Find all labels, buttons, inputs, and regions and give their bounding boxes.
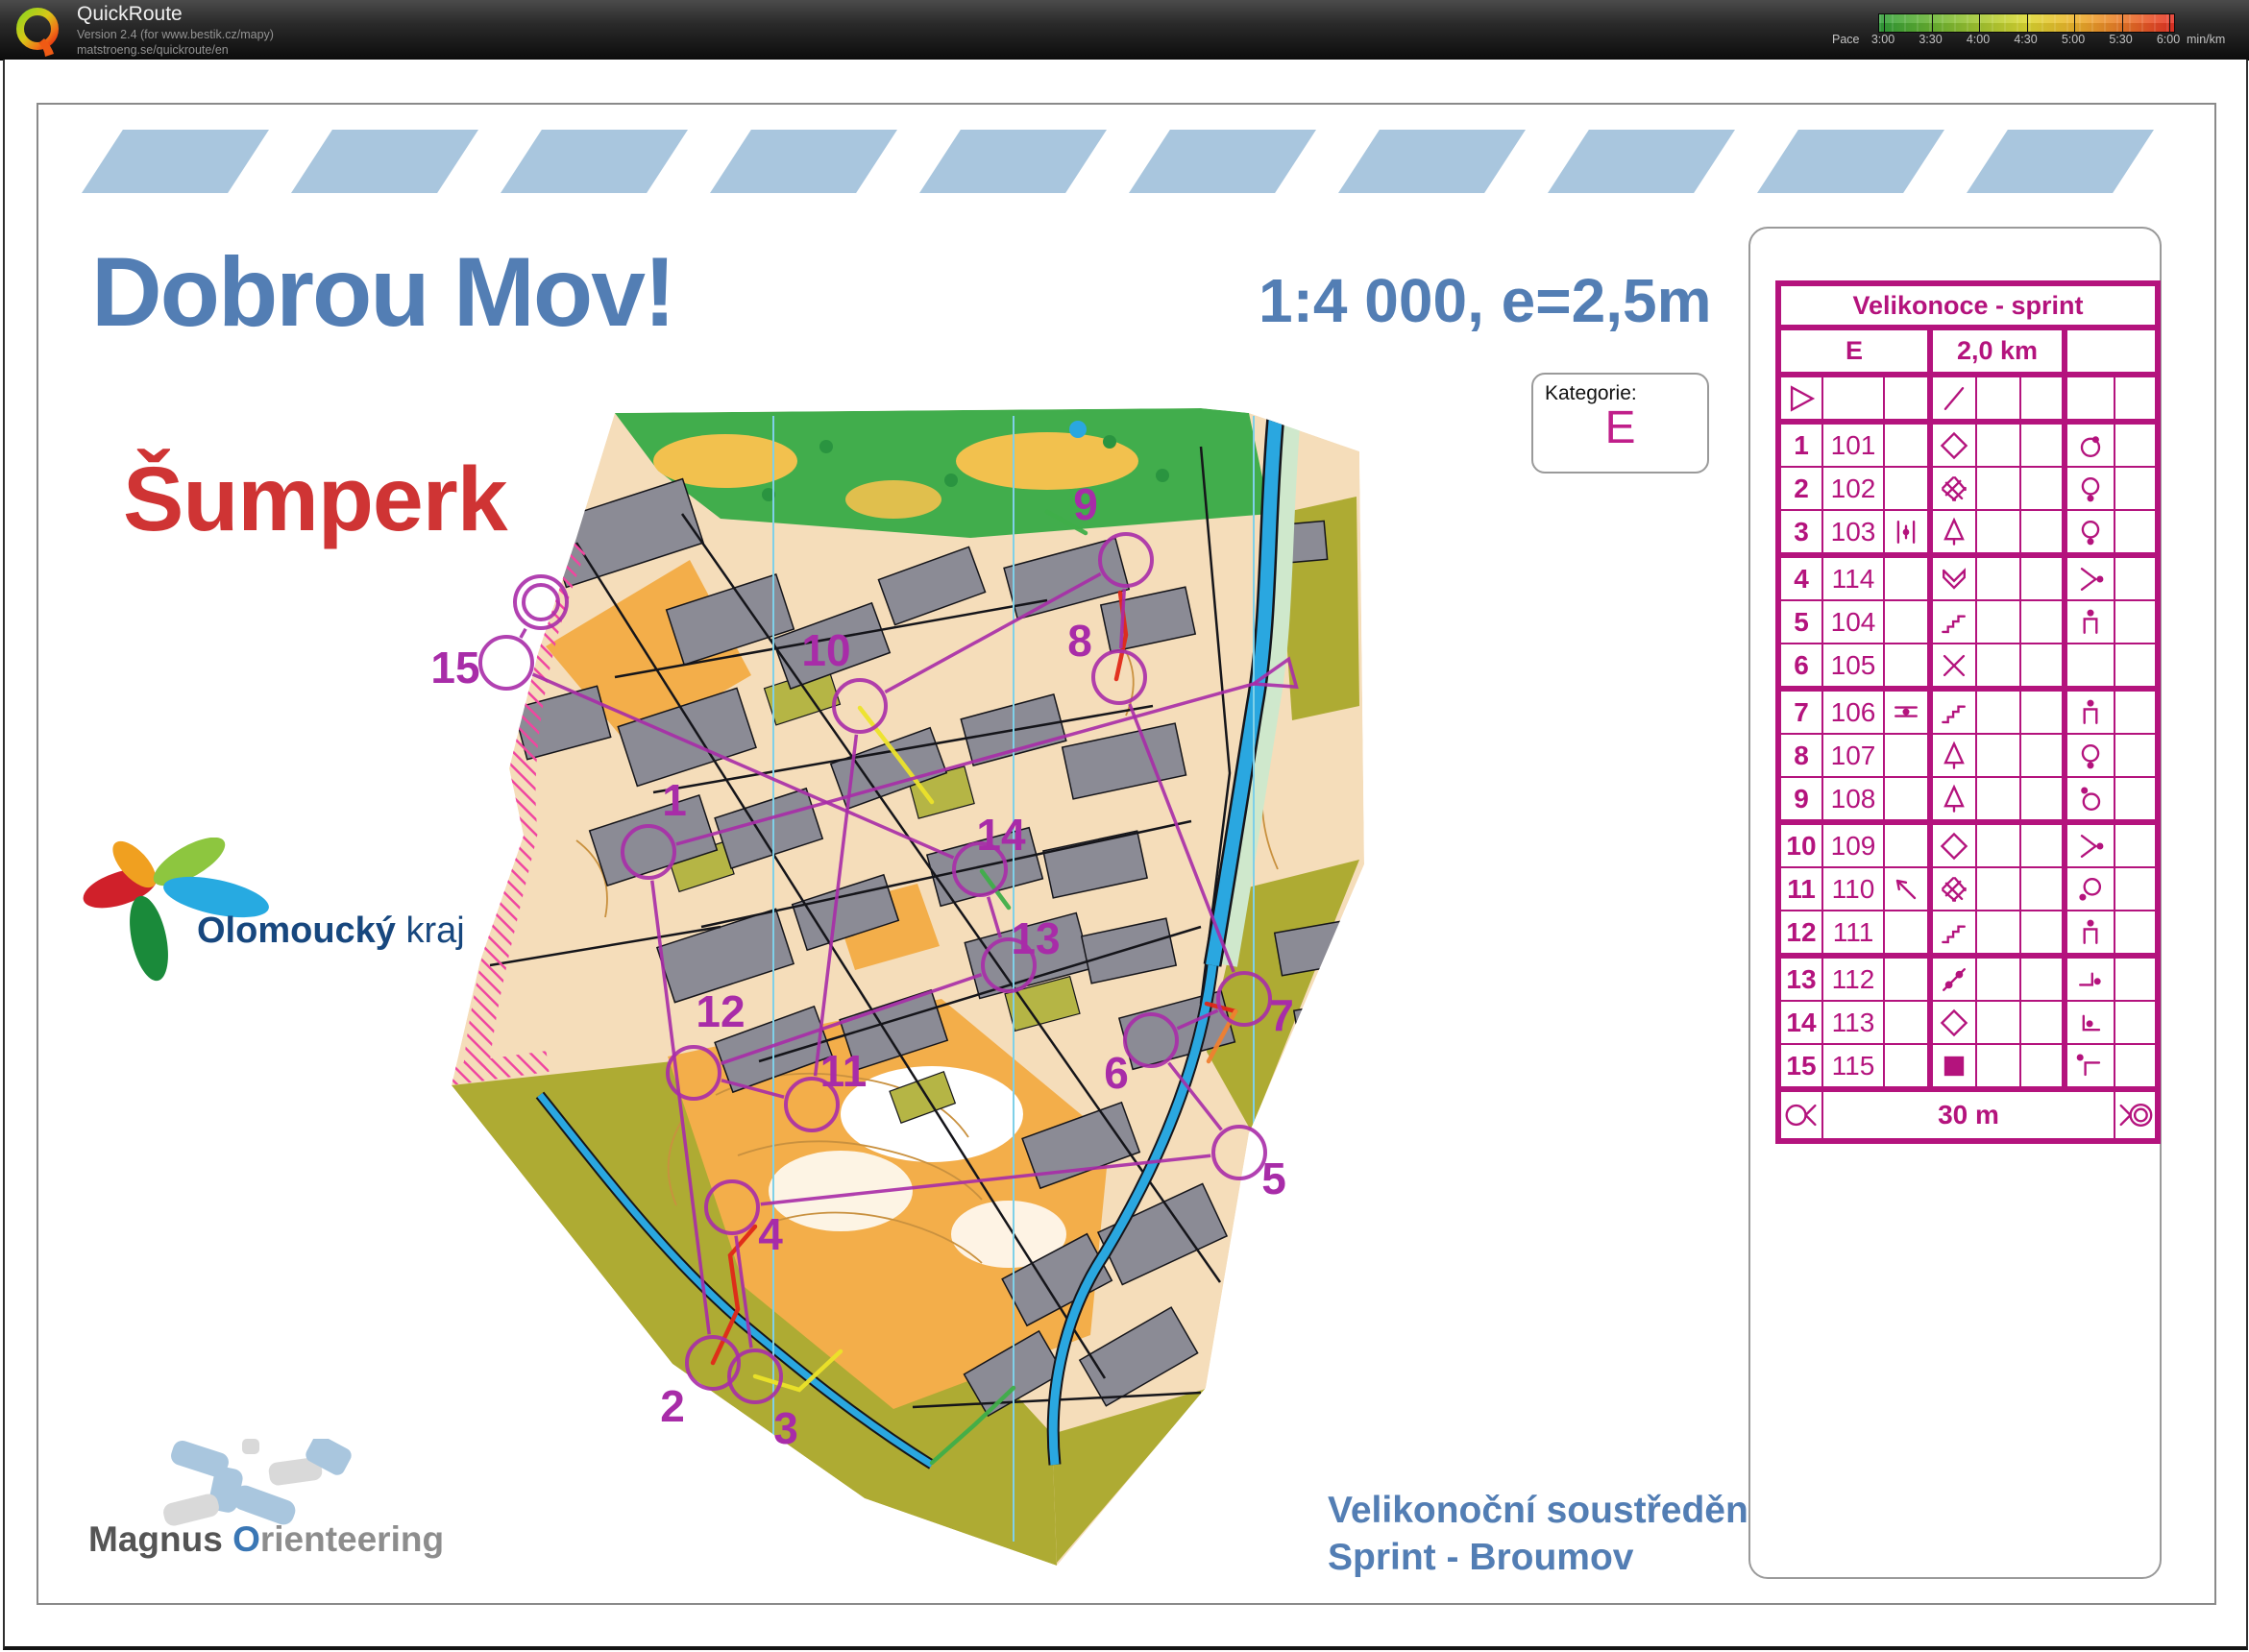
cd-symbol-cell [1930,422,1976,467]
cd-code-cell: 107 [1822,734,1884,777]
cd-row: 4114 [1778,555,2158,600]
cd-number-cell: 2 [1778,467,1822,510]
cd-cell [2020,777,2065,822]
cd-cell [2115,822,2158,867]
control-card: Velikonoce - sprintE2,0 km11012102310341… [1775,280,2161,1144]
pace-tick [2027,14,2028,32]
cd-cell [2115,375,2158,422]
cd-cell [1976,689,2020,734]
cd-cell [2020,422,2065,467]
cd-row: 12111 [1778,911,2158,956]
cd-symbol-cell [1930,734,1976,777]
cd-cell [1976,911,2020,956]
cd-symbol-cell [2065,1001,2115,1044]
cd-header-blank [2065,328,2158,375]
cd-symbol-cell [1930,1044,1976,1089]
cd-row: 1101 [1778,422,2158,467]
cd-title: Velikonoce - sprint [1778,283,2158,328]
event-note: Velikonoční soustředění Sprint - Broumov [1328,1487,1759,1581]
cd-cell [1976,1044,2020,1089]
cd-start-row [1778,375,2158,422]
pace-tick-label: 5:00 [2062,33,2085,46]
quickroute-window: QuickRoute Version 2.4 (for www.bestik.c… [0,0,2249,1652]
control-number: 9 [1073,479,1098,529]
category-box: Kategorie: E [1531,373,1709,474]
cd-cell [2020,644,2065,689]
cd-number-cell: 15 [1778,1044,1822,1089]
cd-cell [1976,467,2020,510]
control-number: 13 [1011,913,1060,963]
cd-cell [2115,1001,2158,1044]
app-site: matstroeng.se/quickroute/en [77,43,229,57]
club-logo-part2: O [232,1519,260,1559]
cd-symbol-cell [1930,1001,1976,1044]
cd-symbol-cell [1930,777,1976,822]
cd-code-cell: 112 [1822,956,1884,1001]
cd-cell [2115,1044,2158,1089]
cd-cell [2020,956,2065,1001]
cd-number-cell: 3 [1778,510,1822,555]
cd-cell [2115,689,2158,734]
club-logo-part3: rienteering [260,1519,444,1559]
cd-cell [2020,867,2065,911]
cd-row: 7106 [1778,689,2158,734]
title-bar: QuickRoute Version 2.4 (for www.bestik.c… [0,0,2249,61]
cd-row: 14113 [1778,1001,2158,1044]
cd-cell [2020,510,2065,555]
map-terrain [450,408,1369,1566]
cd-cell [2115,867,2158,911]
cd-symbol-cell [1884,1044,1930,1089]
cd-number-cell: 11 [1778,867,1822,911]
cd-symbol-cell [2065,911,2115,956]
app-version: Version 2.4 (for www.bestik.cz/mapy) [77,28,274,41]
orienteering-map: 123456789101112131415 [432,389,1369,1566]
cd-symbol-cell [1884,822,1930,867]
cd-symbol-cell [2065,644,2115,689]
category-value: E [1533,401,1707,454]
map-scale-text: 1:4 000, e=2,5m [1259,265,1711,336]
event-note-line2: Sprint - Broumov [1328,1534,1759,1581]
cd-cell [2020,689,2065,734]
cd-code-cell: 113 [1822,1001,1884,1044]
cd-cell [1884,375,1930,422]
cd-symbol-cell [1930,689,1976,734]
control-number: 2 [660,1381,685,1431]
pace-tick [2169,14,2170,32]
cd-symbol-cell [2065,867,2115,911]
cd-row: 13112 [1778,956,2158,1001]
cd-cell [2115,777,2158,822]
cd-cell [2020,555,2065,600]
cd-cell [2020,1044,2065,1089]
cd-row: 10109 [1778,822,2158,867]
cd-cell [1976,422,2020,467]
control-number: 3 [773,1403,798,1453]
pace-tick-label: 4:30 [2014,33,2037,46]
cd-start-triangle-cell [1778,375,1822,422]
control-number: 10 [801,625,850,675]
cd-cell [2115,600,2158,644]
cd-cell [2020,600,2065,644]
cd-symbol-cell [1930,600,1976,644]
control-description-table: Velikonoce - sprintE2,0 km11012102310341… [1775,280,2161,1144]
cd-symbol-cell [2065,555,2115,600]
control-number: 4 [758,1209,783,1259]
control-number: 12 [696,986,745,1036]
cd-cell [2115,644,2158,689]
pace-tick-label: 5:30 [2109,33,2132,46]
cd-code-cell: 115 [1822,1044,1884,1089]
cd-cell [1976,1001,2020,1044]
cd-symbol-cell [2065,956,2115,1001]
app-title: QuickRoute [77,3,183,26]
cd-finish-cell [2115,1089,2158,1141]
cd-symbol-cell [1884,644,1930,689]
cd-row: 8107 [1778,734,2158,777]
cd-symbol-cell [1884,467,1930,510]
cd-symbol-cell [2065,822,2115,867]
cd-row: 9108 [1778,777,2158,822]
cd-number-cell: 6 [1778,644,1822,689]
cd-number-cell: 8 [1778,734,1822,777]
cd-symbol-cell [2065,689,2115,734]
pace-tick [2074,14,2075,32]
cd-number-cell: 1 [1778,422,1822,467]
cd-code-cell: 110 [1822,867,1884,911]
cd-number-cell: 5 [1778,600,1822,644]
club-logo-part1: Magnus [88,1519,232,1559]
cd-cell [2020,375,2065,422]
pace-tick [1884,14,1885,32]
cd-symbol-cell [1884,867,1930,911]
cd-cell [1930,375,1976,422]
cd-number-cell: 4 [1778,555,1822,600]
control-number: 5 [1261,1154,1286,1203]
pace-tick-label: 6:00 [2157,33,2180,46]
control-number: 1 [662,775,687,825]
cd-cell [1976,777,2020,822]
cd-code-cell: 106 [1822,689,1884,734]
cd-number-cell: 12 [1778,911,1822,956]
cd-cell [2115,734,2158,777]
quickroute-logo-icon [12,4,65,62]
cd-number-cell: 9 [1778,777,1822,822]
cd-symbol-cell [1884,600,1930,644]
cd-cell [2115,911,2158,956]
pace-gradient-bar [1878,13,2175,33]
control-number: 6 [1104,1048,1129,1098]
cd-number-cell: 10 [1778,822,1822,867]
cd-symbol-cell [1930,510,1976,555]
course-leg-line [521,629,526,638]
cd-footer-distance: 30 m [1822,1089,2115,1141]
cd-symbol-cell [1884,555,1930,600]
cd-code-cell: 114 [1822,555,1884,600]
control-number: 7 [1269,990,1294,1040]
cd-symbol-cell [1884,911,1930,956]
cd-cell [1976,555,2020,600]
cd-symbol-cell [1884,422,1930,467]
cd-cell [1976,867,2020,911]
cd-cell [1976,375,2020,422]
cd-header-row: E2,0 km [1778,328,2158,375]
cd-symbol-cell [2065,510,2115,555]
cd-cell [2115,467,2158,510]
cd-symbol-cell [1930,956,1976,1001]
control-number: 14 [976,810,1026,860]
cd-symbol-cell [1884,510,1930,555]
pace-tick [1932,14,1933,32]
cd-code-cell: 105 [1822,644,1884,689]
cd-cell [2020,822,2065,867]
finish-circle-inner [524,585,558,619]
pace-scale-label: Pace [1832,33,1860,46]
cd-number-cell: 13 [1778,956,1822,1001]
cd-cell [1976,510,2020,555]
cd-symbol-cell [1930,867,1976,911]
cd-symbol-cell [1884,689,1930,734]
cd-symbol-cell [2065,734,2115,777]
cd-course: E [1778,328,1930,375]
pace-tick-label: 3:00 [1871,33,1895,46]
cd-cell [2115,422,2158,467]
cd-number-cell: 7 [1778,689,1822,734]
cd-footer-row: 30 m [1778,1089,2158,1141]
cd-number-cell: 14 [1778,1001,1822,1044]
cd-length: 2,0 km [1930,328,2065,375]
pace-tick [2122,14,2123,32]
cd-cell [1976,822,2020,867]
cd-cell [2115,555,2158,600]
pace-tick-label: 3:30 [1919,33,1942,46]
cd-cell [2065,375,2115,422]
control-number: 15 [432,643,480,692]
cd-row: 6105 [1778,644,2158,689]
cd-symbol-cell [2065,600,2115,644]
pace-tick [1979,14,1980,32]
event-note-line1: Velikonoční soustředění [1328,1487,1759,1534]
cd-symbol-cell [1930,644,1976,689]
cd-cell [1976,644,2020,689]
cd-cell [1976,734,2020,777]
cd-row: 2102 [1778,467,2158,510]
cd-symbol-cell [1930,822,1976,867]
cd-symbol-cell [1930,555,1976,600]
cd-cell [2115,510,2158,555]
cd-cell [2020,467,2065,510]
cd-funnel-cell [1778,1089,1822,1141]
cd-code-cell: 109 [1822,822,1884,867]
cd-symbol-cell [1884,1001,1930,1044]
pace-tick-label: 4:00 [1967,33,1990,46]
region-logo-text: Olomoucký kraj [197,911,465,952]
cd-code-cell: 104 [1822,600,1884,644]
cd-row: 11110 [1778,867,2158,911]
cd-symbol-cell [2065,467,2115,510]
control-number: 8 [1067,616,1092,666]
cd-row: 5104 [1778,600,2158,644]
cd-symbol-cell [1930,467,1976,510]
cd-symbol-cell [1884,734,1930,777]
cd-symbol-cell [2065,1044,2115,1089]
region-logo-bold: Olomoucký [197,911,396,951]
cd-symbol-cell [1930,911,1976,956]
cd-code-cell: 111 [1822,911,1884,956]
poster-title: Dobrou Mov! [91,236,674,349]
cd-cell [2115,956,2158,1001]
cd-symbol-cell [1884,777,1930,822]
cd-symbol-cell [2065,422,2115,467]
control-circle [480,637,532,689]
cd-cell [2020,1001,2065,1044]
club-logo-text: Magnus Orienteering [88,1519,444,1560]
cd-cell [1976,600,2020,644]
cd-symbol-cell [2065,777,2115,822]
cd-symbol-cell [1884,956,1930,1001]
cd-cell [1976,956,2020,1001]
cd-row: 3103 [1778,510,2158,555]
cd-code-cell: 101 [1822,422,1884,467]
cd-code-cell: 103 [1822,510,1884,555]
pace-scale-unit: min/km [2187,33,2225,46]
cd-cell [2020,911,2065,956]
control-number: 11 [820,1046,868,1096]
cd-cell [1822,375,1884,422]
cd-code-cell: 102 [1822,467,1884,510]
cd-title-row: Velikonoce - sprint [1778,283,2158,328]
cd-cell [2020,734,2065,777]
cd-row: 15115 [1778,1044,2158,1089]
cd-code-cell: 108 [1822,777,1884,822]
